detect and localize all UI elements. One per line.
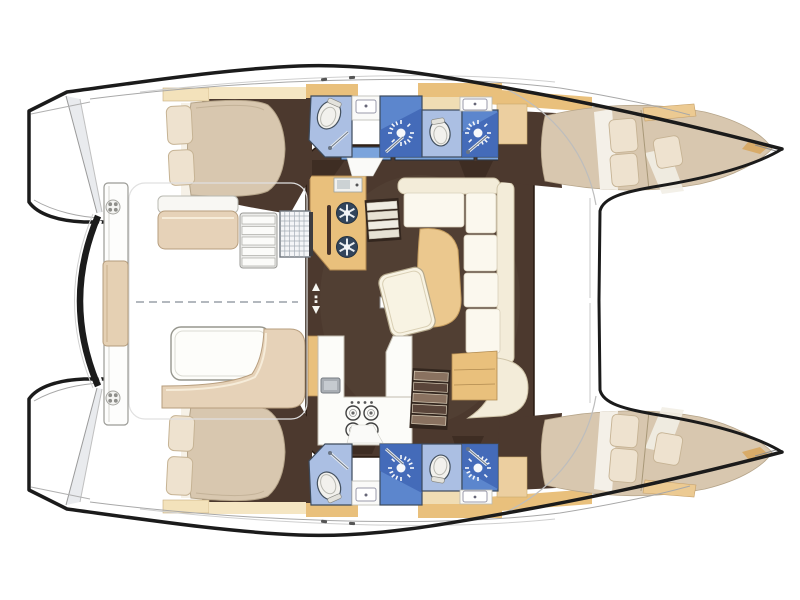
sofa-cushion xyxy=(464,273,498,307)
locker-grate xyxy=(280,211,313,257)
burner-icon xyxy=(364,406,378,420)
transom-step-facet xyxy=(66,96,102,213)
stairs-to-lower-hull xyxy=(409,368,450,430)
stairs-to-upper-hull xyxy=(365,198,402,242)
faucet-dot xyxy=(474,103,477,106)
burner-icon xyxy=(337,203,358,224)
mattress xyxy=(188,100,286,196)
pillow xyxy=(168,149,195,185)
oven-handle xyxy=(327,205,331,255)
burner-icon xyxy=(346,406,360,420)
galley-sink-basin xyxy=(337,180,350,189)
galley-peninsula xyxy=(386,336,412,397)
sofa-cushion xyxy=(466,193,496,233)
cockpit xyxy=(75,183,314,425)
hull-shelf xyxy=(209,87,306,99)
cockpit-bench-cushion xyxy=(158,211,238,249)
sofa-cushion xyxy=(466,309,500,353)
cleat-rosette-icon xyxy=(106,200,120,214)
sink-basin xyxy=(324,381,337,390)
deck-cleat xyxy=(349,76,355,79)
pillow xyxy=(166,105,193,144)
pillow xyxy=(653,135,684,169)
galley-stove-block xyxy=(310,176,366,270)
shower-head-icon xyxy=(388,120,414,146)
catamaran-floor-plan-page xyxy=(0,0,800,600)
cleat-rosette-icon xyxy=(106,391,120,405)
deck-cleat xyxy=(321,78,327,82)
catamaran-floor-plan xyxy=(0,0,800,600)
pillow xyxy=(609,118,639,153)
sofa-cushion xyxy=(464,235,497,271)
sofa-cushion xyxy=(404,193,464,227)
bench-top-board xyxy=(158,196,238,213)
sofa-back xyxy=(398,178,500,194)
faucet-dot xyxy=(365,105,368,108)
faucet-dot xyxy=(356,184,359,187)
bathroom-ledge xyxy=(422,97,462,111)
cockpit-side-steps xyxy=(240,213,277,268)
salon xyxy=(306,145,534,457)
pillow xyxy=(610,153,640,187)
forward-locker xyxy=(497,104,527,144)
sofa-end-cabinet xyxy=(452,351,497,400)
burner-icon xyxy=(337,237,358,258)
